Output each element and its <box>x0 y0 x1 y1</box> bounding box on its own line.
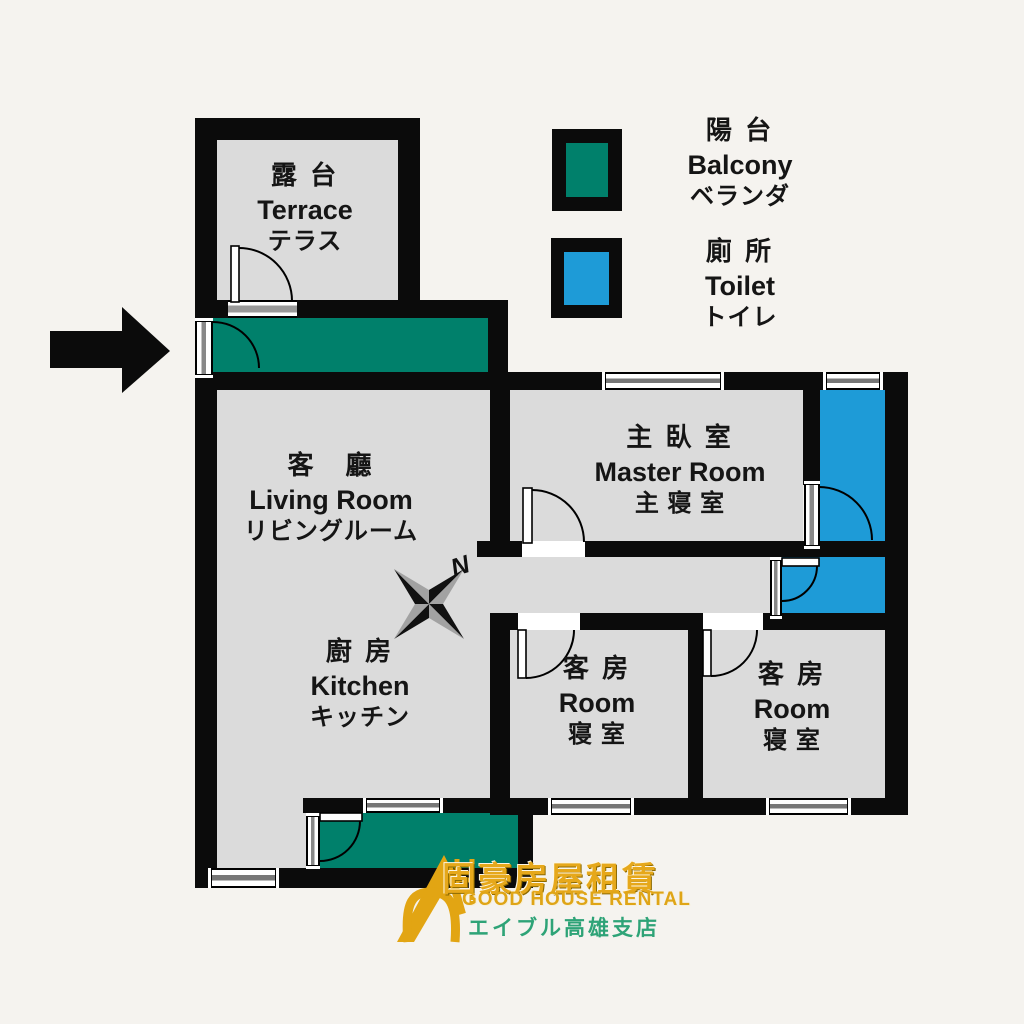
compass-blade <box>394 604 429 639</box>
compass-blade <box>394 569 429 604</box>
terrace-door-leaf <box>231 246 239 302</box>
balcony-legend-zh: 陽 台 <box>640 117 840 143</box>
living-room-label: 客 廳 Living Room リビングルーム <box>211 452 451 544</box>
entrance-door-arc <box>213 322 259 368</box>
toilet-color-swatch <box>564 252 609 305</box>
toilet-legend-ja: トイレ <box>640 306 840 330</box>
master-room-label-ja: 主 寝 室 <box>560 492 800 516</box>
terrace-label-zh: 露 台 <box>195 162 415 188</box>
compass-rose-icon: N <box>394 550 474 639</box>
terrace-label-en: Terrace <box>195 197 415 224</box>
toilet-legend-zh: 廁 所 <box>640 238 840 264</box>
room1-label-ja: 寝 室 <box>507 723 687 747</box>
corridor-toilet-door-leaf <box>782 558 819 566</box>
balcony-color-swatch <box>566 143 608 197</box>
terrace-label: 露 台 Terrace テラス <box>195 162 415 254</box>
living-room-label-en: Living Room <box>211 487 451 514</box>
kitchen-label: 廚 房 Kitchen キッチン <box>250 638 470 730</box>
balcony-legend-ja: ベランダ <box>640 185 840 209</box>
room2-label-zh: 客 房 <box>702 661 882 687</box>
agency-logo-en: GOOD HOUSE RENTAL <box>462 889 691 911</box>
kitchen-balcony-door-arc <box>320 821 360 861</box>
terrace-door-arc <box>239 248 292 301</box>
terrace-label-ja: テラス <box>195 230 415 254</box>
toilet-legend-label: 廁 所 Toilet トイレ <box>640 238 840 330</box>
balcony-legend-box <box>552 129 622 211</box>
room1-label-zh: 客 房 <box>507 655 687 681</box>
corridor-toilet-door-arc <box>782 566 817 601</box>
room2-label: 客 房 Room 寝 室 <box>702 661 882 753</box>
room1-label-en: Room <box>507 690 687 717</box>
toilet-legend-box <box>551 238 622 318</box>
door-arcs <box>213 248 872 861</box>
living-room-label-ja: リビングルーム <box>211 520 451 544</box>
entrance-arrow-icon <box>50 307 170 393</box>
master-room-label-zh: 主 臥 室 <box>560 424 800 450</box>
floor-plan: N 露 台 Terrace テラス 客 廳 Living Room リビングルー… <box>0 0 1024 1024</box>
balcony-legend-en: Balcony <box>640 152 840 179</box>
master-room-label-en: Master Room <box>560 459 800 486</box>
toilet-legend-en: Toilet <box>640 273 840 300</box>
room1-label: 客 房 Room 寝 室 <box>507 655 687 747</box>
agency-logo-ja: エイブル高雄支店 <box>468 912 660 942</box>
master-toilet-door-arc <box>819 487 872 540</box>
master-room-label: 主 臥 室 Master Room 主 寝 室 <box>560 424 800 516</box>
agency-logo: 固豪房屋租賃 GOOD HOUSE RENTAL エイブル高雄支店 <box>390 845 680 950</box>
kitchen-label-zh: 廚 房 <box>250 638 470 664</box>
kitchen-label-ja: キッチン <box>250 706 470 730</box>
kitchen-balcony-door-leaf <box>320 813 362 821</box>
compass-blade <box>429 604 464 639</box>
room2-label-ja: 寝 室 <box>702 729 882 753</box>
room2-label-en: Room <box>702 696 882 723</box>
master-door-leaf <box>523 488 532 543</box>
balcony-legend-label: 陽 台 Balcony ベランダ <box>640 117 840 209</box>
living-room-label-zh: 客 廳 <box>211 452 451 478</box>
kitchen-label-en: Kitchen <box>250 673 470 700</box>
